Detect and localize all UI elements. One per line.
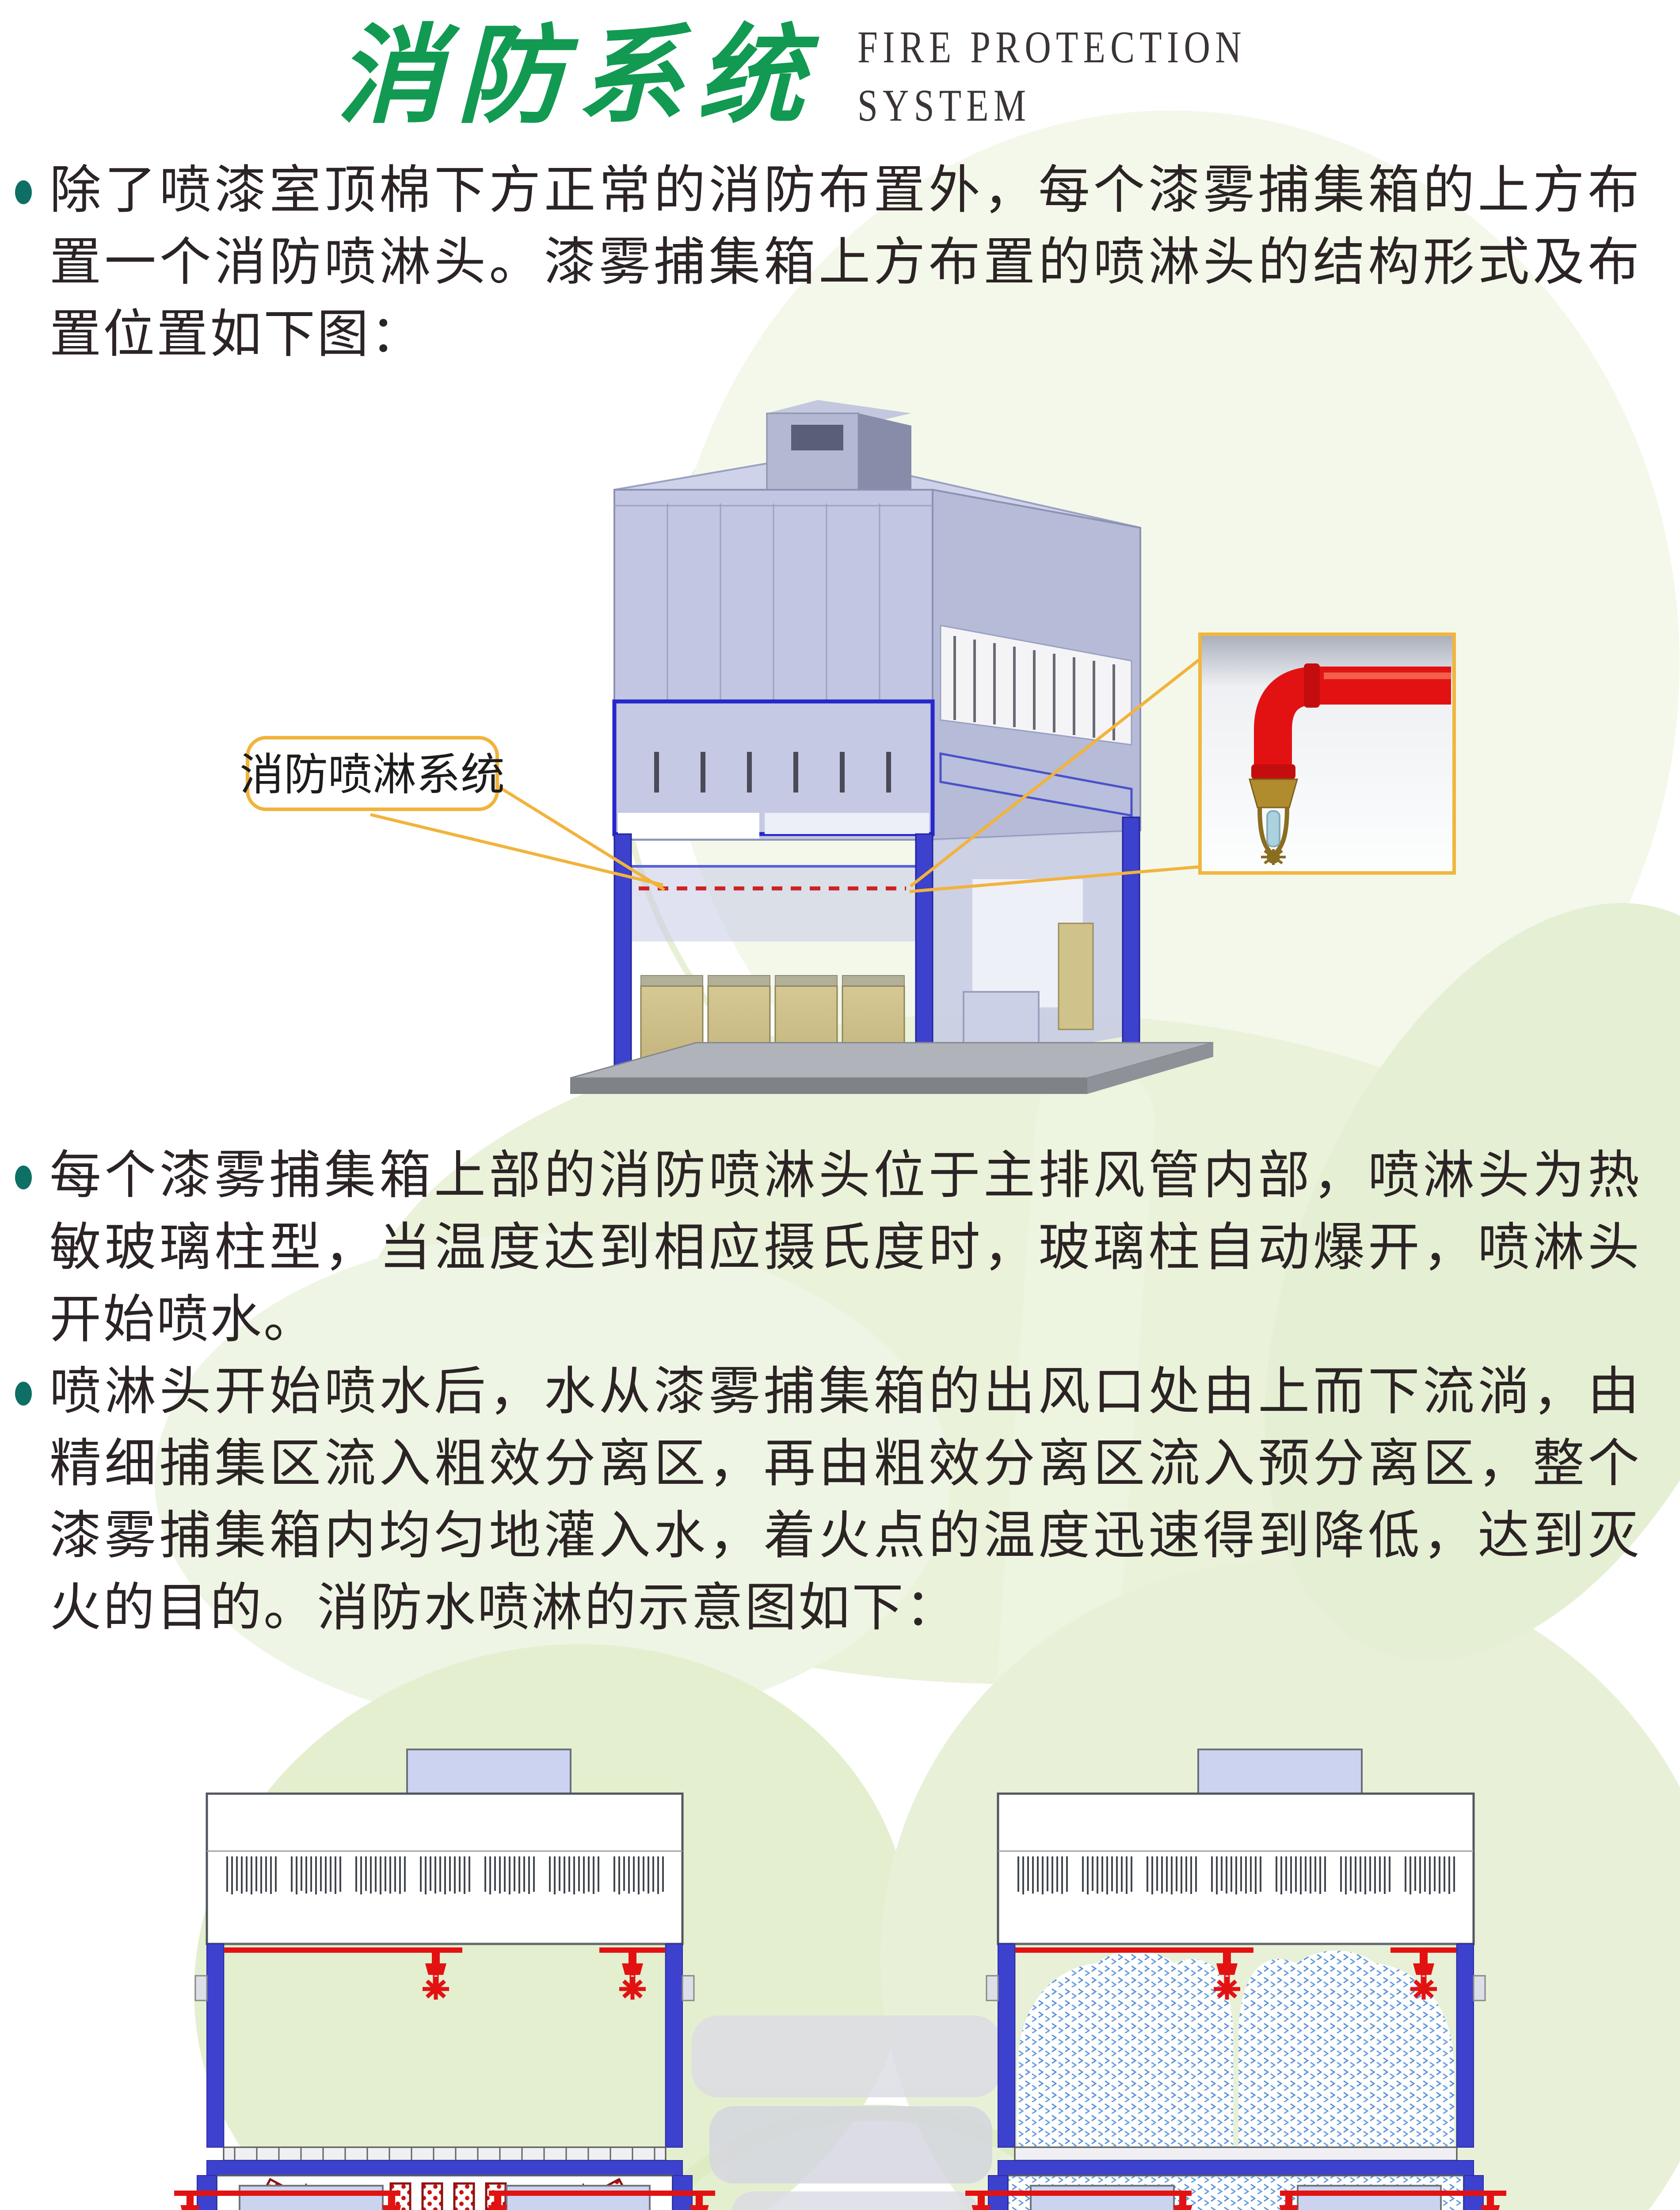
sprinkler-system-label-text: 消防喷淋系统: [240, 751, 505, 800]
filter-brush-row: [227, 1856, 663, 1894]
fire-mode-diagram: [944, 1724, 1528, 2210]
bullet-paragraph-2: 每个漆雾捕集箱上部的消防喷淋头位于主排风管内部，喷淋头为热敏玻璃柱型，当温度达到…: [50, 1140, 1641, 1356]
sprinkler-head-callout: [1200, 634, 1454, 873]
normal-mode-diagram: [153, 1724, 736, 2210]
normal-mode-figure: 正常工作模式: [153, 1724, 736, 2210]
bullet-dot-icon: [15, 180, 32, 204]
sprinkler-3d-illustration: 消防喷淋系统: [0, 371, 1680, 1105]
water-spray-upper: [1017, 1951, 1454, 2146]
bullet-dot-icon: [15, 1166, 32, 1189]
fire-title-en: FIRE PROTECTION SYSTEM: [857, 19, 1246, 135]
fire-mode-figure: 消防启动模式: [944, 1724, 1528, 2210]
top-sprinkler-pipes: [211, 1950, 678, 2000]
fire-title-en-line1: FIRE PROTECTION: [857, 19, 1246, 77]
bullet-paragraph-1: 除了喷漆室顶棉下方正常的消防布置外，每个漆雾捕集箱的上方布置一个消防喷淋头。漆雾…: [50, 155, 1641, 371]
bullet-paragraph-2-text: 每个漆雾捕集箱上部的消防喷淋头位于主排风管内部，喷淋头为热敏玻璃柱型，当温度达到…: [50, 1147, 1641, 1349]
capture-box-right: [501, 2186, 655, 2210]
fire-title-zh: 消防系统: [337, 23, 818, 130]
bullet-paragraph-1-text: 除了喷漆室顶棉下方正常的消防布置外，每个漆雾捕集箱的上方布置一个消防喷淋头。漆雾…: [50, 162, 1641, 363]
bullet-dot-icon: [15, 1382, 32, 1406]
bullet-paragraph-3-text: 喷淋头开始喷水后，水从漆雾捕集箱的出风口处由上而下流淌，由精细捕集区流入粗效分离…: [50, 1364, 1641, 1637]
capture-box-left: [234, 2186, 388, 2210]
fire-section-header: 消防系统 FIRE PROTECTION SYSTEM: [0, 0, 1680, 150]
sprinkler-system-label: 消防喷淋系统: [240, 738, 505, 809]
mode-diagrams: 正常工作模式: [0, 1724, 1680, 2210]
paint-booth-tower: [570, 400, 1213, 1094]
fire-title-en-line2: SYSTEM: [857, 77, 1246, 135]
filter-brush-row: [1018, 1856, 1454, 1894]
bullet-paragraph-3: 喷淋头开始喷水后，水从漆雾捕集箱的出风口处由上而下流淌，由精细捕集区流入粗效分离…: [50, 1356, 1641, 1644]
